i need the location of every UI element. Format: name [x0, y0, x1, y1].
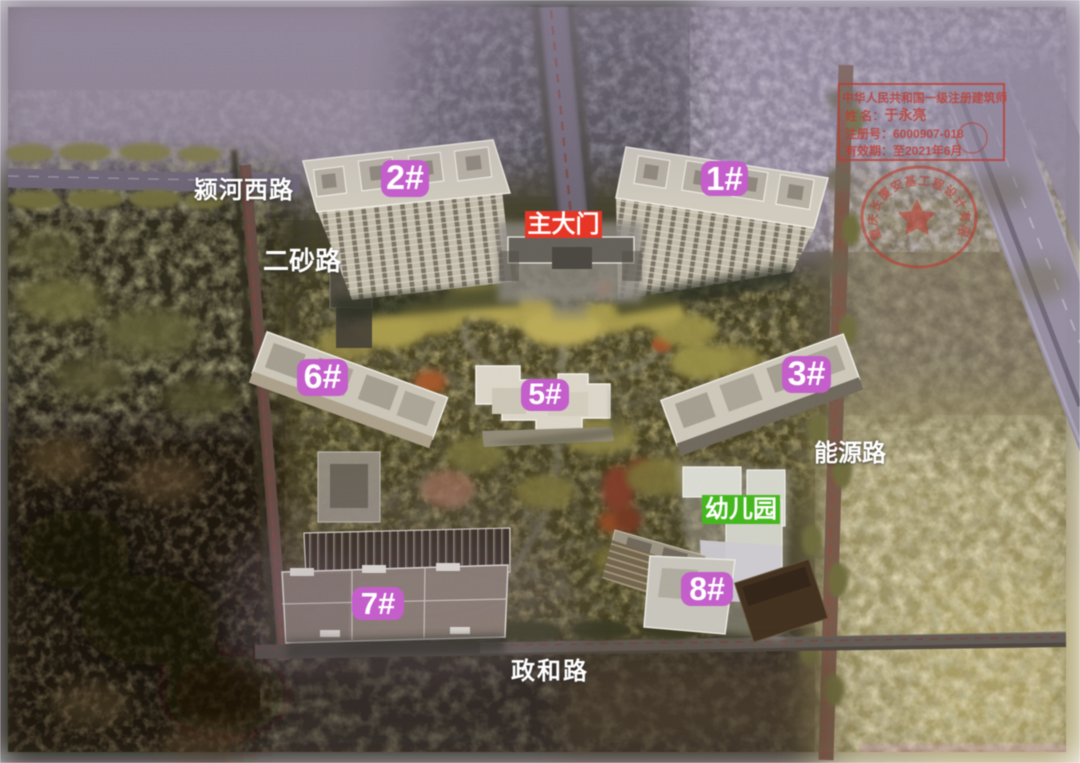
svg-text:有效期：至2021年6月: 有效期：至2021年6月: [845, 143, 962, 158]
svg-text:中华人民共和国一级注册建筑师: 中华人民共和国一级注册建筑师: [842, 91, 1007, 105]
svg-text:注册号：6000907-018: 注册号：6000907-018: [845, 126, 964, 141]
svg-text:姓 名：于永亮: 姓 名：于永亮: [845, 107, 926, 123]
